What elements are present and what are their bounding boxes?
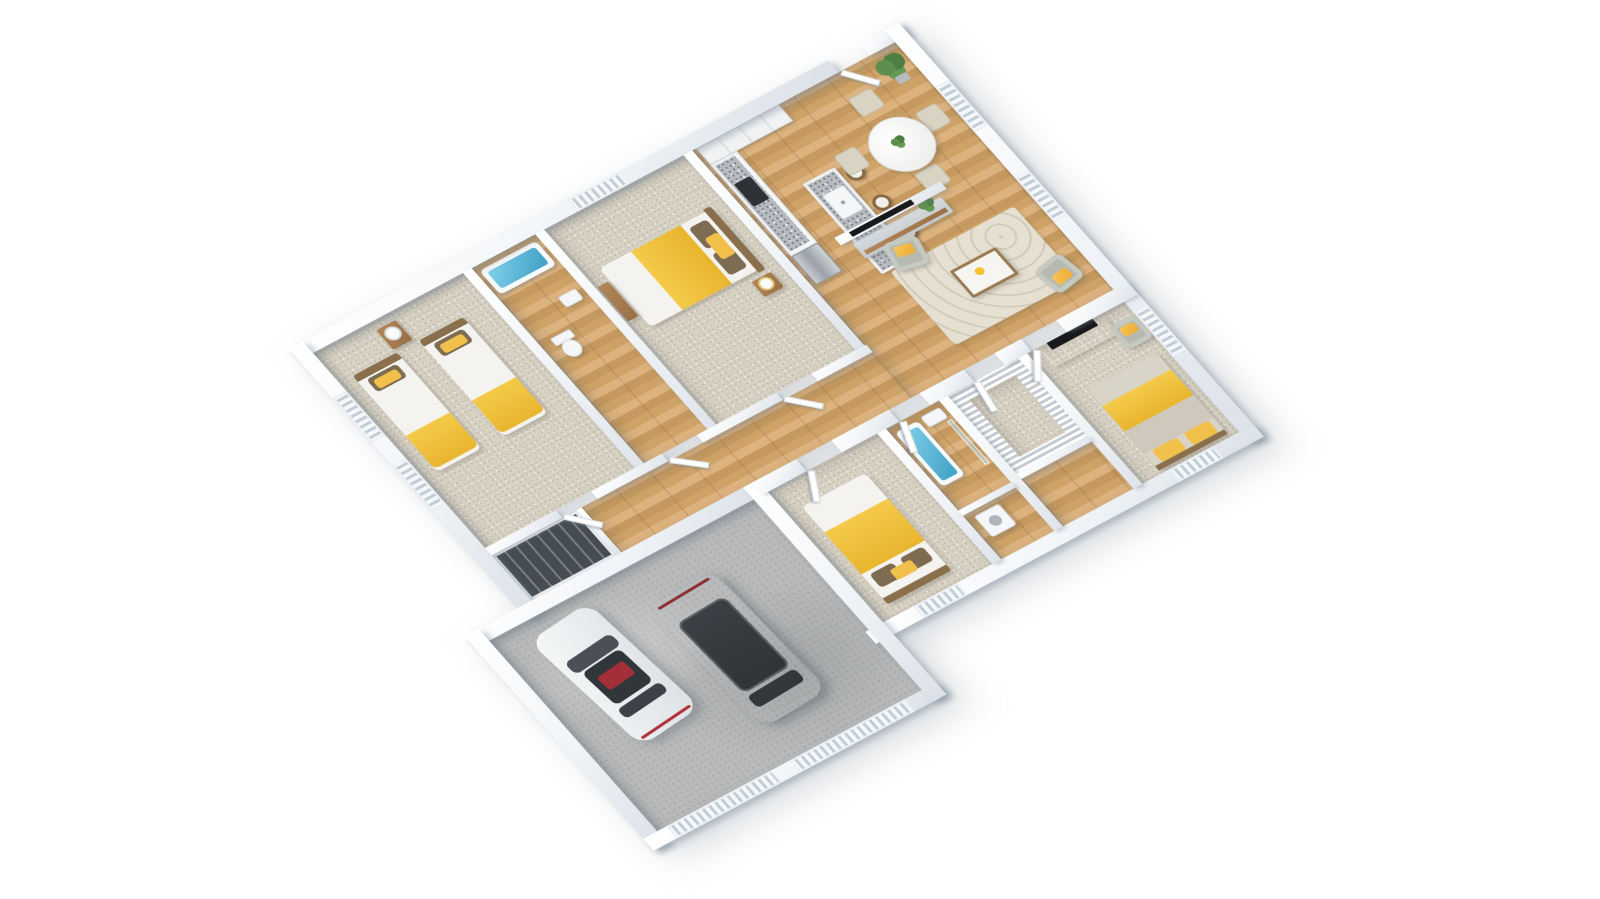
yellow-bowl [973,266,987,277]
yellow-cushion [1118,321,1139,337]
red-cabin-interior [596,661,635,691]
floorplan-3d-render [232,21,1350,886]
washer-door [986,513,1005,528]
faucet [840,200,846,205]
yellow-cushion [893,242,917,257]
master-bedroom-door [1033,350,1042,382]
yellow-cushion [1051,267,1074,286]
